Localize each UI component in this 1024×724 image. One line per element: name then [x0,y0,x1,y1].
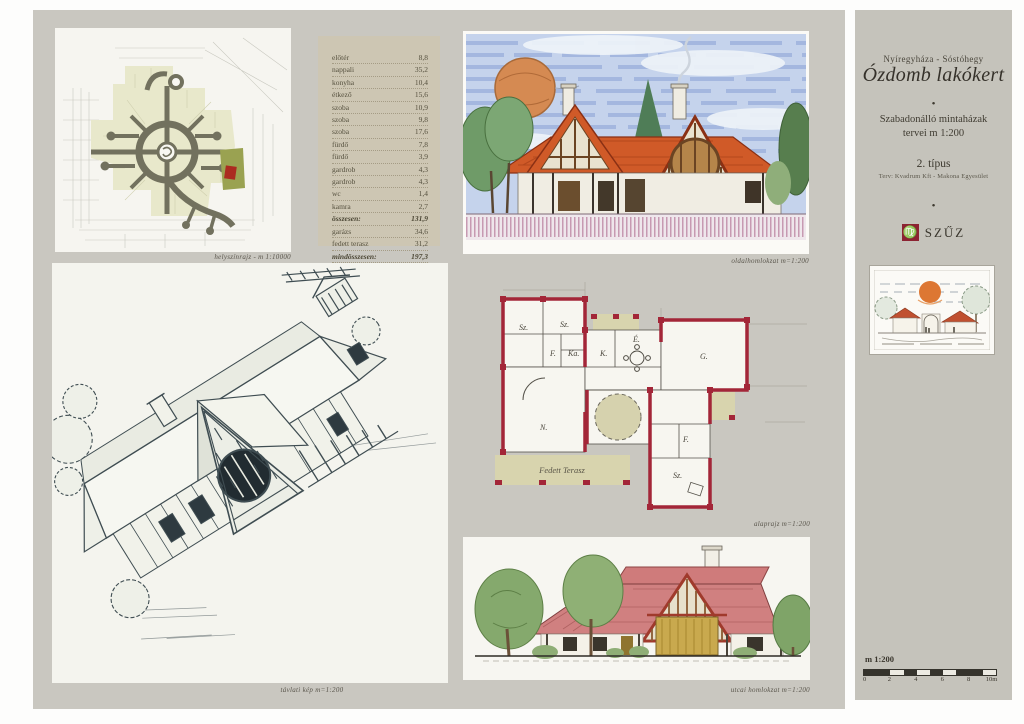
side-elevation-caption: oldalhomlokzat m=1:200 [609,257,809,265]
svg-text:K.: K. [599,349,607,358]
table-row: étkező15,6 [332,89,428,101]
terrace-label: Fedett Terasz [538,465,585,475]
area-table-panel: előtér8,8 nappali35,2 konyha10,4 étkező1… [318,36,440,246]
scale-label: m 1:200 [865,654,894,664]
sun-icon [919,281,941,303]
svg-text:Sz.: Sz. [560,320,569,329]
svg-text:G.: G. [700,352,708,361]
table-row-total: mindösszesen:197,3 [332,251,428,263]
table-row: kamra2,7 [332,201,428,213]
street-elevation-drawing [463,537,810,680]
table-row: előtér8,8 [332,52,428,64]
presentation-sheet: helyszínrajz - m 1:10000 előtér8,8 nappa… [0,0,1024,724]
scale-ticks: 0 2 4 6 8 10m [863,676,995,686]
table-row: garázs34,6 [332,226,428,238]
table-row: fürdő7,8 [332,139,428,151]
thumbnail-sketch [874,270,990,350]
axonometric-panel [52,263,448,683]
table-row: gardrob4,3 [332,176,428,188]
street-elevation-panel [463,537,810,680]
scale-bar [863,669,997,676]
table-row: fedett terasz31,2 [332,238,428,250]
type-label: 2. típus [855,158,1012,170]
table-row: konyha10,4 [332,77,428,89]
table-row: szoba9,8 [332,114,428,126]
svg-text:F.: F. [682,435,689,444]
separator-bullet: • [855,200,1012,212]
site-plan-panel [55,28,291,252]
floor-plan-drawing: Sz. Sz. F. Ka. K. É. G. N. F. Sz. Fedett… [465,272,810,520]
svg-text:N.: N. [539,423,547,432]
title-sidebar: Nyíregyháza - Sóstóhegy Ózdomb lakókert … [855,10,1012,700]
thumbnail-frame [869,265,995,355]
table-row: nappali35,2 [332,64,428,76]
logo-row: ♍ SZŰZ [855,224,1012,241]
side-elevation-drawing [463,31,809,254]
site-plan-drawing [55,28,291,252]
area-table: előtér8,8 nappali35,2 konyha10,4 étkező1… [332,52,428,263]
subtitle-line1: Szabadonálló mintaházak [855,114,1012,125]
table-row: gardrob4,3 [332,164,428,176]
side-elevation-panel [463,31,809,254]
table-row-subtotal: összesen:131,9 [332,213,428,225]
project-location: Nyíregyháza - Sóstóhegy [855,54,1012,64]
subtitle-line2: tervei m 1:200 [855,128,1012,139]
floor-plan-region: Sz. Sz. F. Ka. K. É. G. N. F. Sz. Fedett… [465,272,810,520]
svg-text:Sz.: Sz. [673,471,682,480]
culdesac-loop [170,76,182,88]
site-plan-caption: helyszínrajz - m 1:10000 [121,253,291,261]
selected-lot-marker [224,165,237,179]
separator-bullet: • [855,98,1012,110]
svg-text:Ka.: Ka. [567,349,579,358]
project-title: Ózdomb lakókert [855,64,1012,87]
axonometric-drawing [52,263,448,683]
atrium-circle [595,394,641,440]
svg-text:É.: É. [632,334,640,344]
axonometric-caption: távlati kép m=1:200 [52,686,432,694]
main-board: helyszínrajz - m 1:10000 előtér8,8 nappa… [33,10,845,709]
logo-text: SZŰZ [925,225,966,241]
garage-door [656,617,718,655]
svg-text:F.: F. [549,349,556,358]
table-row: wc1,4 [332,188,428,200]
floor-plan-caption: alaprajz m=1:200 [610,520,810,528]
street-elevation-caption: utcai homlokzat m=1:200 [610,686,810,694]
szuz-logo-icon: ♍ [902,224,919,241]
svg-text:Sz.: Sz. [519,323,528,332]
table-row: szoba17,6 [332,126,428,138]
table-row: fürdő3,9 [332,151,428,163]
table-row: szoba10,9 [332,102,428,114]
credit-line: Terv: Kvadrum Kft - Makona Egyesület [855,173,1012,180]
